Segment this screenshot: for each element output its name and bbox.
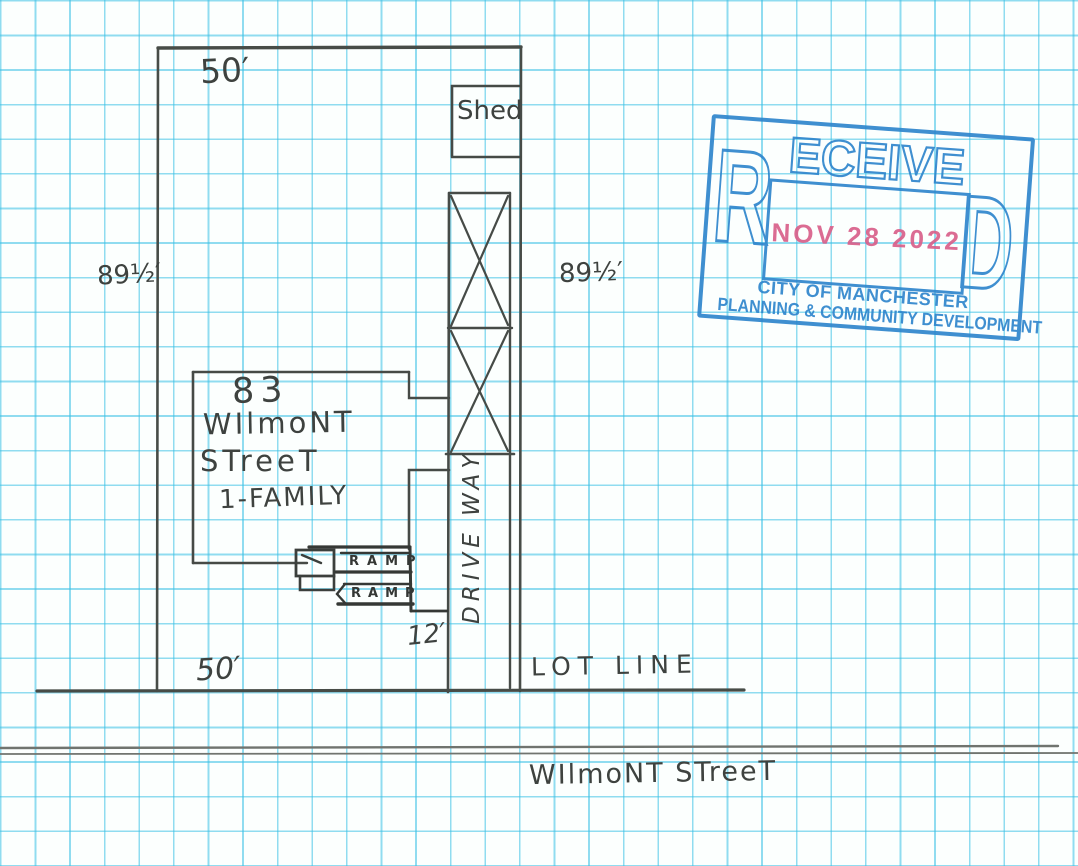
lot-line-right [520,47,521,691]
shed-label: Shed [457,98,522,124]
lot-line-label: LOT LINE [531,652,699,680]
street-lines [0,746,1078,754]
ramp2-left-arrow [337,584,346,604]
house-right [409,470,449,549]
lot-line-left [157,48,158,691]
dimension-left: 89½′ [96,260,161,289]
street-line-2 [0,753,1078,754]
stamp-date: NOV 28 2022 [771,217,963,257]
lot-line-top [158,47,521,48]
received-stamp: R ECEIVE D NOV 28 2022 CITY OF MANCHESTE… [697,114,1035,341]
ramp-lower-label: RAMP [351,587,422,600]
street-line-1 [0,746,1058,748]
house-type-label: 1-FAMILY [219,483,349,513]
ramp-width-dimension: 12′ [406,620,448,650]
driveway-label: DRIVE WAY [461,450,484,624]
house-street-label-2: STreeT [200,447,321,476]
porch-outline [296,550,334,590]
porch-box-lower [300,576,334,590]
house-notch [409,372,449,398]
street-name-label: WIlmoNT STreeT [529,758,778,789]
stamp-date-box: NOV 28 2022 [762,178,971,295]
house-street-label-1: WIlmoNT [203,408,355,440]
ramp-upper-label: RAMP [349,555,424,568]
driveway-left-edge [448,193,449,692]
dimension-bottom: 50′ [195,653,242,686]
dimension-top: 50′ [199,53,250,89]
house-number-label: 83 [231,373,289,410]
lot-line-bottom [37,690,744,691]
dimension-right: 89½′ [559,259,624,287]
graph-paper-scan: 50′ 89½′ 89½′ 50′ Shed 83 WIlmoNT STreeT… [0,0,1078,866]
